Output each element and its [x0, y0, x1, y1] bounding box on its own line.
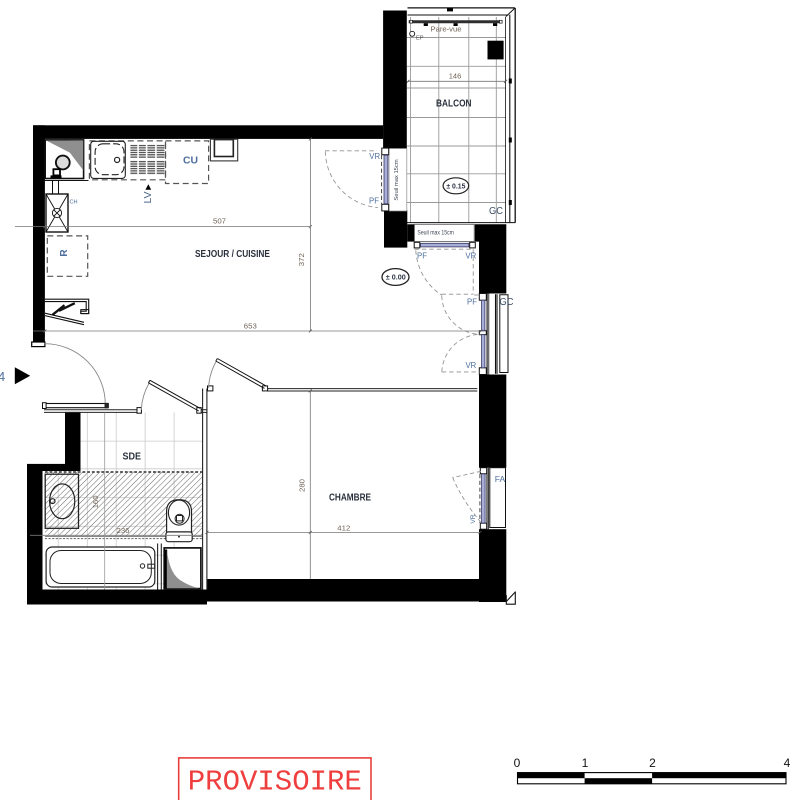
svg-text:SEJOUR / CUISINE: SEJOUR / CUISINE [195, 249, 270, 260]
svg-text:SDE: SDE [123, 452, 142, 463]
svg-text:CH: CH [70, 200, 78, 206]
svg-text:VR: VR [465, 251, 476, 260]
svg-text:± 0.00: ± 0.00 [386, 273, 406, 282]
svg-text:FA: FA [495, 474, 506, 484]
svg-text:160: 160 [91, 495, 100, 508]
svg-text:GC: GC [489, 205, 503, 217]
svg-text:PF: PF [417, 251, 427, 260]
svg-text:Pare-vue: Pare-vue [431, 25, 462, 34]
svg-text:Seuil max 15cm: Seuil max 15cm [394, 159, 400, 200]
svg-text:CHAMBRE: CHAMBRE [329, 492, 371, 503]
svg-text:2: 2 [649, 756, 656, 770]
svg-text:146: 146 [449, 71, 462, 80]
svg-text:0: 0 [514, 756, 521, 770]
svg-text:PF: PF [369, 196, 379, 205]
svg-text:Seuil max 15cm: Seuil max 15cm [417, 229, 454, 236]
svg-text:372: 372 [297, 253, 306, 266]
svg-text:CU: CU [183, 156, 198, 167]
svg-text:EP: EP [416, 36, 424, 42]
svg-text:507: 507 [213, 217, 226, 226]
svg-text:BALCON: BALCON [436, 99, 472, 110]
svg-text:280: 280 [297, 479, 306, 492]
svg-text:412: 412 [337, 524, 350, 533]
svg-text:4: 4 [784, 756, 791, 770]
svg-text:PROVISOIRE: PROVISOIRE [188, 766, 362, 799]
svg-text:236: 236 [117, 526, 130, 535]
svg-text:VR: VR [465, 361, 476, 370]
svg-text:1: 1 [582, 756, 589, 770]
svg-text:PF: PF [467, 297, 477, 306]
svg-text:± 0.15: ± 0.15 [446, 182, 465, 191]
svg-text:GC: GC [500, 296, 514, 308]
svg-text:VR: VR [470, 514, 477, 523]
svg-text:4: 4 [0, 369, 5, 384]
svg-text:VR: VR [369, 152, 380, 161]
svg-text:LV: LV [142, 191, 154, 203]
svg-text:R: R [59, 249, 70, 257]
svg-text:653: 653 [244, 321, 257, 330]
